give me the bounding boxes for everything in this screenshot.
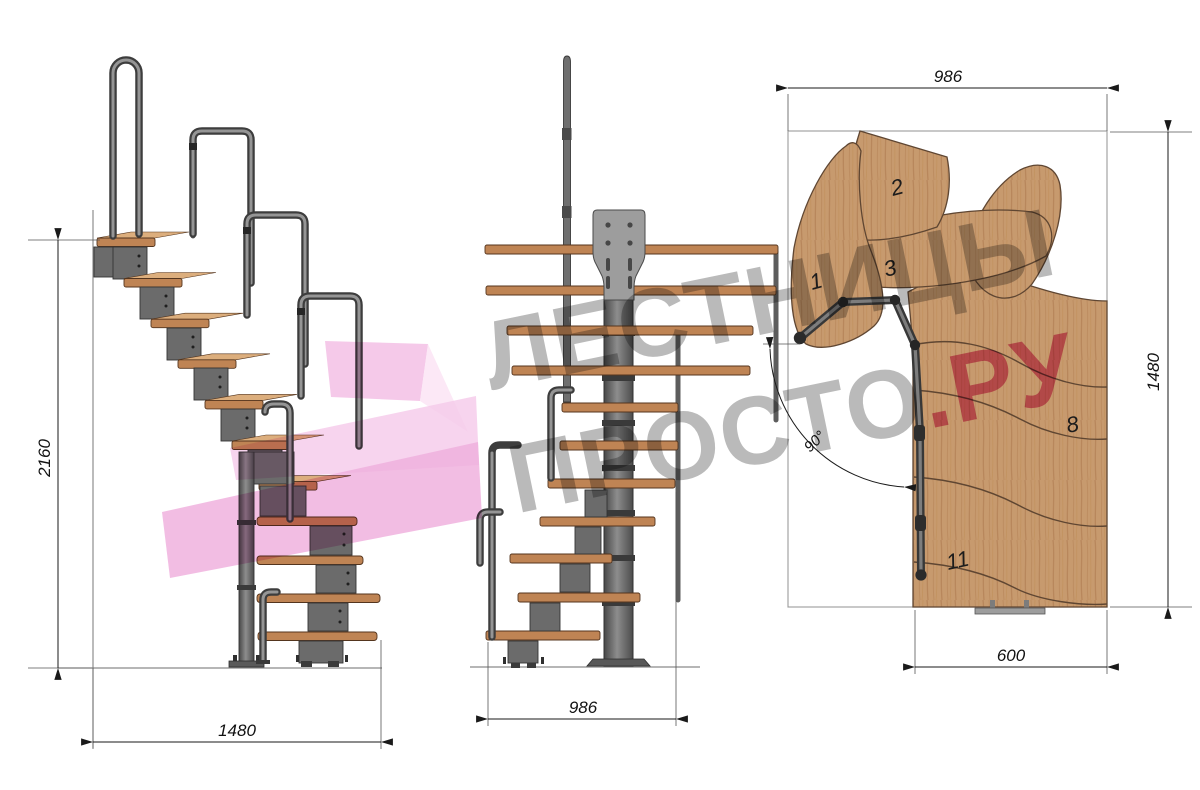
staircase-technical-drawing: 1 2 3 8 11 2160 1480 986 (0, 0, 1200, 790)
watermark-domain-accent: .РУ (911, 311, 1086, 449)
